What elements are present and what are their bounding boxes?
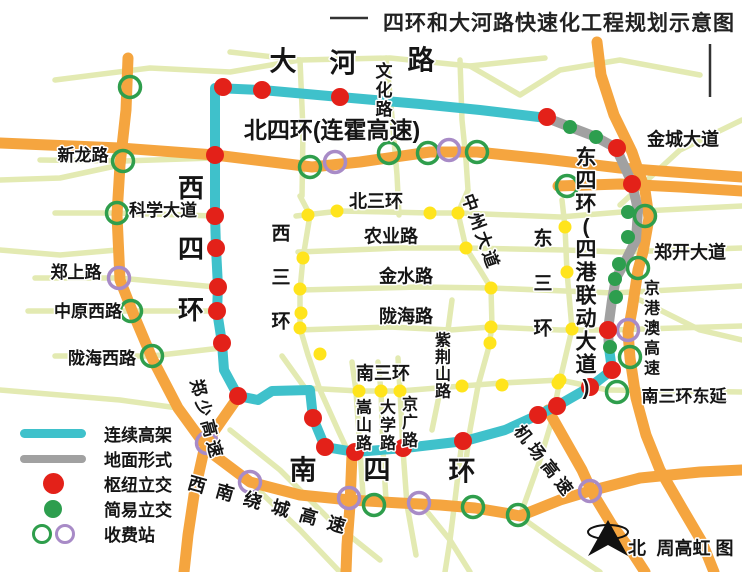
legend-item-toll: 收费站 [14, 524, 172, 543]
north-arrow-icon [588, 520, 628, 556]
svg-text:): ) [583, 376, 590, 399]
hub-interchange-marker [209, 278, 227, 296]
simple-interchange-swatch [44, 500, 62, 518]
svg-text:大: 大 [576, 330, 597, 353]
svg-text:学: 学 [380, 416, 396, 435]
svg-text:大: 大 [380, 398, 396, 417]
hub-interchange-marker [208, 302, 226, 320]
road-flavor-top-3 [470, 60, 700, 95]
legend-label: 收费站 [104, 521, 155, 546]
map-figure: 大河路文化路北四环(连霍高速)西四环东四环(四港联动大道)新龙路科学大道郑上路中… [0, 0, 742, 572]
toll-station-green-swatch [32, 524, 52, 544]
legend-item-simple: 简易立交 [14, 499, 172, 518]
svg-text:环: 环 [533, 319, 552, 340]
junction-dot [485, 282, 498, 295]
svg-text:文: 文 [376, 61, 394, 81]
svg-text:环: 环 [178, 295, 204, 325]
svg-text:紫: 紫 [435, 331, 451, 350]
junction-dot [297, 252, 310, 265]
svg-text:化: 化 [376, 80, 393, 100]
map-label: 金城大道 [646, 128, 719, 149]
road-flavor-left-2 [0, 250, 117, 255]
svg-text:四: 四 [178, 234, 204, 264]
svg-text:西: 西 [271, 224, 290, 245]
legend-label: 连续高架 [104, 421, 172, 446]
hub-interchange-marker [529, 406, 547, 424]
page-title: 四环和大河路快速化工程规划示意图 [383, 7, 735, 37]
map-label: 科学大道 [129, 200, 197, 220]
legend-label: 枢纽立交 [104, 471, 172, 496]
svg-text:港: 港 [576, 260, 598, 284]
svg-text:山: 山 [356, 417, 372, 435]
hub-interchange-marker [331, 88, 349, 106]
map-label: 南三环东延 [642, 386, 728, 406]
hub-interchange-swatch [43, 473, 64, 494]
svg-text:环: 环 [271, 312, 290, 333]
hub-interchange-marker [623, 175, 641, 193]
junction-dot [424, 207, 437, 220]
simple-interchange-marker [612, 257, 626, 271]
junction-dot [496, 379, 509, 392]
toll-station-purple-swatch [55, 524, 75, 544]
junction-dot [394, 385, 407, 398]
svg-text:澳: 澳 [644, 319, 661, 338]
svg-text:港: 港 [644, 299, 661, 318]
map-label: 陇海路 [379, 305, 434, 326]
junction-dot [295, 307, 308, 320]
map-label: 农业路 [363, 225, 419, 246]
simple-interchange-marker [603, 340, 617, 354]
map-label: 北三环 [349, 191, 403, 211]
svg-text:三: 三 [533, 274, 552, 295]
hub-interchange-marker [599, 321, 617, 339]
junction-dot [314, 348, 327, 361]
map-label: 西三环 [271, 224, 290, 333]
map-label: 北四环(连霍高速) [244, 117, 420, 143]
road-flavor-top-4 [460, 60, 468, 190]
svg-text:高: 高 [644, 339, 660, 358]
hub-interchange-marker [603, 361, 621, 379]
svg-text:广: 广 [402, 413, 418, 432]
hub-interchange-marker [206, 146, 224, 164]
junction-dot [460, 242, 473, 255]
hub-interchange-marker [213, 334, 231, 352]
svg-text:山: 山 [435, 366, 451, 384]
svg-text:动: 动 [576, 307, 597, 330]
svg-text:道: 道 [576, 352, 597, 376]
junction-dot [375, 385, 388, 398]
map-label: 周高虹 图 [656, 537, 733, 558]
junction-dot [456, 380, 469, 393]
legend: 连续高架 地面形式 枢纽立交 简易立交 收费站 [14, 424, 172, 543]
map-label: 北 [628, 538, 646, 558]
map-label: 新龙路 [58, 145, 110, 165]
map-label: 机场高速 [510, 421, 580, 503]
svg-text:联: 联 [576, 284, 597, 307]
svg-text:速: 速 [644, 360, 660, 378]
svg-text:四: 四 [576, 238, 597, 261]
map-label: 西四环 [178, 173, 204, 325]
map-label: 京港澳高速 [644, 279, 661, 378]
hub-interchange-marker [206, 207, 224, 225]
svg-text:嵩: 嵩 [356, 398, 372, 417]
simple-interchange-marker [609, 290, 623, 304]
map-label: 嵩山路 [356, 398, 373, 453]
svg-text:(: ( [583, 215, 590, 238]
road-longhai-rd [298, 326, 742, 330]
simple-interchange-marker [608, 272, 622, 286]
svg-text:环: 环 [576, 192, 597, 215]
map-label: 河 [330, 48, 357, 78]
map-label: 路 [408, 44, 436, 75]
simple-interchange-marker [589, 130, 603, 144]
map-label: 东四环(四港联动大道) [576, 145, 598, 399]
hub-interchange-marker [454, 432, 472, 450]
hub-interchange-marker [253, 81, 271, 99]
junction-dot [485, 321, 498, 334]
hub-interchange-marker [207, 239, 225, 257]
legend-item-hub: 枢纽立交 [14, 474, 172, 493]
map-label: 西南绕城高速 [186, 472, 359, 540]
junction-dot [559, 221, 572, 234]
svg-text:三: 三 [271, 268, 290, 289]
svg-text:路: 路 [402, 431, 419, 450]
road-flavor-bottom-3 [518, 515, 600, 572]
svg-text:路: 路 [435, 382, 452, 401]
simple-interchange-marker [621, 205, 635, 219]
map-label: 南 [290, 455, 317, 485]
legend-label: 地面形式 [104, 446, 172, 471]
map-label: 大学路 [380, 398, 397, 453]
map-label: 大 [270, 46, 297, 76]
svg-text:东: 东 [576, 145, 597, 169]
road-flavor-top-1 [55, 60, 300, 80]
map-label: 环 [449, 456, 476, 486]
ground-line-swatch [20, 455, 86, 463]
junction-dot [331, 205, 344, 218]
hub-interchange-marker [229, 387, 247, 405]
map-label: 紫荆山路 [435, 331, 452, 401]
map-label: 金水路 [378, 265, 434, 286]
junction-dot [294, 283, 307, 296]
legend-item-ground: 地面形式 [14, 449, 172, 468]
map-label: 文化路 [376, 61, 394, 119]
svg-text:路: 路 [356, 434, 373, 453]
map-label: 中原西路 [54, 301, 123, 321]
svg-text:荆: 荆 [435, 348, 451, 367]
simple-interchange-marker [621, 230, 635, 244]
svg-text:东: 东 [533, 227, 552, 250]
hub-interchange-marker [214, 78, 232, 96]
road-jinshui-rd [300, 286, 742, 293]
junction-dot [554, 374, 567, 387]
map-label: 郑上路 [51, 262, 103, 282]
svg-text:四: 四 [576, 169, 597, 192]
legend-item-elevated: 连续高架 [14, 424, 172, 443]
map-label: 四 [364, 455, 391, 485]
junction-dot [484, 337, 497, 350]
junction-dot [353, 385, 366, 398]
junction-dot [561, 266, 574, 279]
map-label: 京广路 [402, 395, 419, 450]
road-flavor-left-1 [0, 165, 120, 180]
svg-text:路: 路 [376, 99, 394, 119]
svg-text:京: 京 [402, 395, 418, 414]
hub-interchange-marker [304, 409, 322, 427]
junction-dot [294, 322, 307, 335]
svg-text:京: 京 [644, 279, 660, 298]
map-label: 南三环 [356, 362, 410, 383]
hub-interchange-marker [538, 108, 556, 126]
hub-interchange-marker [608, 139, 626, 157]
svg-text:西: 西 [178, 173, 204, 203]
legend-label: 简易立交 [104, 496, 172, 521]
road-south-spur [346, 454, 352, 572]
hub-interchange-marker [548, 397, 566, 415]
map-label: 陇海西路 [68, 348, 137, 368]
road-flavor-left-3 [0, 390, 178, 408]
elevated-line-swatch [20, 429, 86, 438]
junction-dot [302, 209, 315, 222]
hub-interchange-marker [316, 438, 334, 456]
map-label: 郑开大道 [654, 241, 726, 262]
simple-interchange-marker [563, 120, 577, 134]
map-label: 东三环 [533, 227, 552, 340]
svg-text:路: 路 [380, 434, 397, 453]
